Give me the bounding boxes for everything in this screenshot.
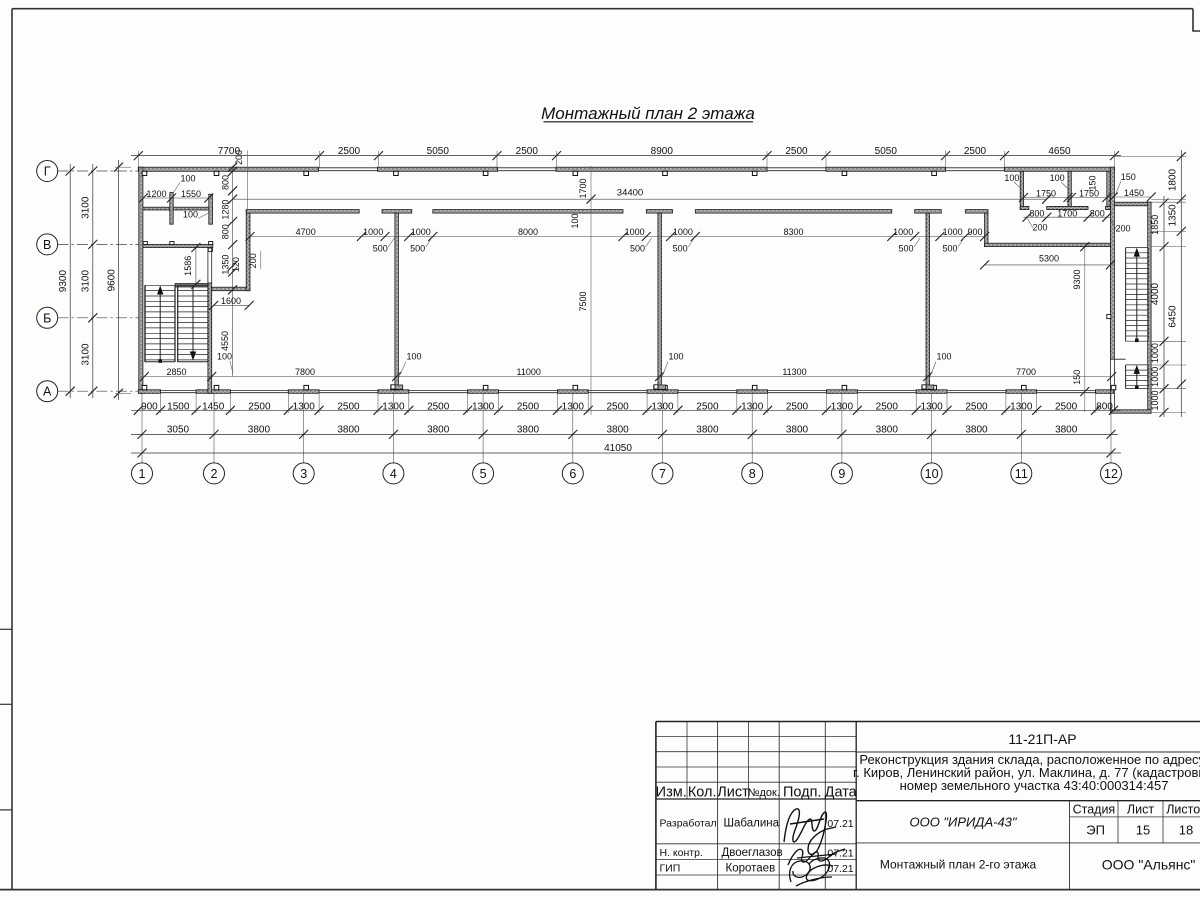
svg-text:2500: 2500 [964,146,987,157]
svg-text:Стадия: Стадия [1073,802,1116,816]
svg-text:ООО "Альянс": ООО "Альянс" [1102,856,1196,872]
svg-text:500: 500 [373,244,388,254]
svg-text:1300: 1300 [1010,401,1033,412]
svg-text:11-21П-АР: 11-21П-АР [1008,731,1076,747]
svg-text:Дата: Дата [825,784,858,800]
svg-text:Монтажный план 2-го этажа: Монтажный план 2-го этажа [880,858,1037,872]
svg-text:2500: 2500 [516,146,539,157]
svg-text:150: 150 [1088,175,1098,190]
svg-text:7700: 7700 [1016,367,1036,377]
svg-text:1280: 1280 [220,200,230,220]
svg-text:3800: 3800 [965,425,988,436]
svg-text:4: 4 [390,467,397,481]
svg-text:100: 100 [936,352,951,362]
svg-text:900: 900 [967,227,982,237]
svg-text:150: 150 [1072,370,1082,385]
svg-text:2500: 2500 [338,146,361,157]
svg-text:ЭП: ЭП [1086,822,1105,837]
svg-text:2500: 2500 [517,401,540,412]
svg-text:7800: 7800 [295,367,315,377]
svg-text:3800: 3800 [337,425,360,436]
svg-text:1: 1 [139,467,146,481]
svg-text:1450: 1450 [1124,188,1144,198]
svg-text:2850: 2850 [166,367,186,377]
svg-text:200: 200 [234,150,244,165]
svg-text:800: 800 [220,175,230,190]
svg-text:500: 500 [630,244,645,254]
svg-text:1300: 1300 [293,401,316,412]
svg-text:1000: 1000 [893,227,913,237]
svg-text:1000: 1000 [1150,343,1160,363]
svg-text:34400: 34400 [617,188,643,199]
svg-text:500: 500 [898,244,913,254]
svg-text:11300: 11300 [782,367,806,377]
svg-text:1300: 1300 [472,401,495,412]
svg-text:А: А [43,385,52,399]
svg-text:2500: 2500 [696,401,719,412]
svg-text:1300: 1300 [562,401,585,412]
svg-text:4700: 4700 [296,227,316,237]
svg-text:ГИП: ГИП [660,863,681,875]
svg-text:3800: 3800 [876,425,899,436]
svg-text:800: 800 [1029,208,1044,218]
svg-text:1000: 1000 [943,227,963,237]
svg-text:Изм.: Изм. [656,784,687,800]
svg-text:1350: 1350 [1167,204,1178,227]
svg-text:1300: 1300 [651,401,674,412]
svg-text:1300: 1300 [382,401,405,412]
svg-text:2500: 2500 [248,401,271,412]
svg-text:1350: 1350 [220,255,230,275]
svg-text:Шабалина: Шабалина [724,817,780,829]
svg-text:6450: 6450 [1167,305,1178,328]
svg-text:1200: 1200 [146,189,166,199]
svg-text:07.21: 07.21 [827,847,853,859]
svg-text:6: 6 [569,467,576,481]
svg-text:8: 8 [749,467,756,481]
svg-text:Лист: Лист [1127,802,1154,816]
svg-text:800: 800 [1096,401,1113,412]
svg-text:2500: 2500 [786,401,809,412]
svg-text:3800: 3800 [427,425,450,436]
svg-text:18: 18 [1179,822,1193,837]
svg-text:В: В [43,238,51,252]
svg-text:4000: 4000 [1150,282,1161,305]
svg-text:Двоеглазов: Двоеглазов [722,847,783,859]
svg-text:120: 120 [231,257,241,272]
svg-text:900: 900 [141,401,158,412]
svg-text:4650: 4650 [1048,146,1071,157]
svg-text:100: 100 [180,173,195,183]
svg-text:1300: 1300 [831,401,854,412]
svg-text:Н. контр.: Н. контр. [660,847,703,859]
svg-text:№док.: №док. [748,787,780,799]
svg-text:3100: 3100 [81,270,92,293]
svg-text:Монтажный план 2 этажа: Монтажный план 2 этажа [541,104,755,123]
svg-text:2500: 2500 [337,401,360,412]
svg-text:1550: 1550 [181,189,201,199]
svg-text:5300: 5300 [1039,253,1059,263]
svg-text:9: 9 [838,467,845,481]
svg-text:Б: Б [43,311,51,325]
svg-text:2500: 2500 [876,401,899,412]
svg-text:41050: 41050 [604,443,632,454]
svg-text:1000: 1000 [625,227,645,237]
svg-text:3: 3 [300,467,307,481]
svg-text:3100: 3100 [81,196,92,219]
svg-text:1000: 1000 [363,227,383,237]
svg-text:100: 100 [570,213,580,228]
svg-text:5: 5 [480,467,487,481]
svg-text:2500: 2500 [427,401,450,412]
svg-text:8300: 8300 [783,227,803,237]
svg-text:9600: 9600 [106,269,117,292]
svg-text:1300: 1300 [741,401,764,412]
svg-text:2500: 2500 [1055,401,1078,412]
svg-text:1800: 1800 [1167,168,1178,191]
svg-text:2500: 2500 [606,401,629,412]
svg-text:4550: 4550 [220,331,230,351]
svg-text:200: 200 [1115,223,1130,233]
svg-text:2500: 2500 [965,401,988,412]
svg-text:2500: 2500 [785,146,808,157]
svg-text:3800: 3800 [1055,425,1078,436]
svg-text:1500: 1500 [167,401,190,412]
svg-text:100: 100 [1004,173,1019,183]
svg-text:1000: 1000 [1150,390,1160,410]
svg-text:3800: 3800 [517,425,540,436]
svg-text:Подп.: Подп. [783,784,822,800]
svg-text:Г: Г [44,165,51,179]
svg-text:15: 15 [1136,822,1150,837]
svg-text:100: 100 [183,209,198,219]
svg-text:Кол.: Кол. [688,784,717,800]
svg-text:200: 200 [248,253,258,268]
svg-text:07.21: 07.21 [827,863,853,875]
svg-text:1000: 1000 [1150,367,1160,387]
svg-text:12: 12 [1104,467,1118,481]
svg-text:10: 10 [925,467,939,481]
svg-text:3050: 3050 [167,425,190,436]
svg-text:Листов: Листов [1166,802,1200,816]
svg-text:500: 500 [410,244,425,254]
svg-text:5050: 5050 [875,146,898,157]
svg-text:номер земельного участка 43:40: номер земельного участка 43:40:000314:45… [900,778,1169,793]
svg-text:11: 11 [1015,467,1028,481]
svg-text:Лист: Лист [717,784,749,800]
svg-text:8900: 8900 [651,146,674,157]
svg-text:1300: 1300 [920,401,943,412]
svg-text:3100: 3100 [81,343,92,366]
svg-text:200: 200 [1032,223,1047,233]
svg-text:7500: 7500 [578,291,588,311]
svg-text:5050: 5050 [427,146,450,157]
svg-text:3800: 3800 [786,425,809,436]
svg-text:1000: 1000 [673,227,693,237]
svg-text:1700: 1700 [1057,208,1077,218]
svg-text:1700: 1700 [578,178,588,198]
svg-text:100: 100 [217,352,232,362]
svg-text:1450: 1450 [202,401,225,412]
svg-text:Разработал: Разработал [660,817,717,829]
svg-text:9300: 9300 [1072,269,1082,289]
svg-text:500: 500 [673,244,688,254]
svg-text:1000: 1000 [411,227,431,237]
svg-text:100: 100 [1050,173,1065,183]
svg-text:800: 800 [220,224,230,239]
svg-text:100: 100 [668,352,683,362]
svg-text:3800: 3800 [248,425,271,436]
svg-text:3800: 3800 [696,425,719,436]
svg-text:Коротаев: Коротаев [726,863,776,875]
svg-text:1600: 1600 [221,296,241,306]
svg-text:500: 500 [942,244,957,254]
svg-text:1750: 1750 [1036,188,1056,198]
svg-text:2: 2 [211,467,218,481]
svg-text:9300: 9300 [58,270,69,293]
svg-text:11000: 11000 [517,367,541,377]
svg-text:3800: 3800 [606,425,629,436]
svg-text:800: 800 [1090,208,1105,218]
svg-text:1586: 1586 [183,256,193,276]
svg-text:1850: 1850 [1150,215,1160,235]
svg-text:7: 7 [659,467,666,481]
svg-text:150: 150 [1121,172,1136,182]
svg-text:100: 100 [406,352,421,362]
svg-text:8000: 8000 [518,227,538,237]
svg-text:ООО "ИРИДА-43": ООО "ИРИДА-43" [909,815,1017,830]
